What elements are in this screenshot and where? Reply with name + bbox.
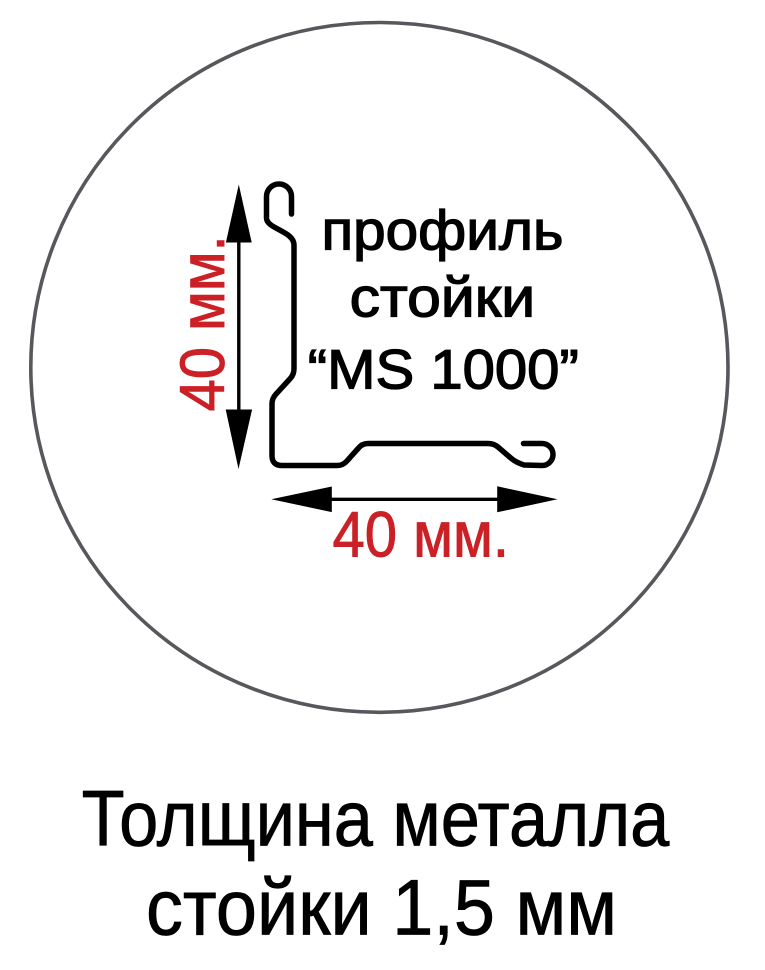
svg-text:профиль: профиль xyxy=(322,198,564,261)
svg-text:“MS 1000”: “MS 1000” xyxy=(308,338,579,401)
svg-text:40 мм.: 40 мм. xyxy=(333,499,510,571)
svg-text:40 мм.: 40 мм. xyxy=(168,235,238,411)
svg-text:стойки 1,5 мм: стойки 1,5 мм xyxy=(146,863,617,952)
svg-text:стойки: стойки xyxy=(350,266,536,329)
svg-text:Толщина металла: Толщина металла xyxy=(82,774,670,863)
